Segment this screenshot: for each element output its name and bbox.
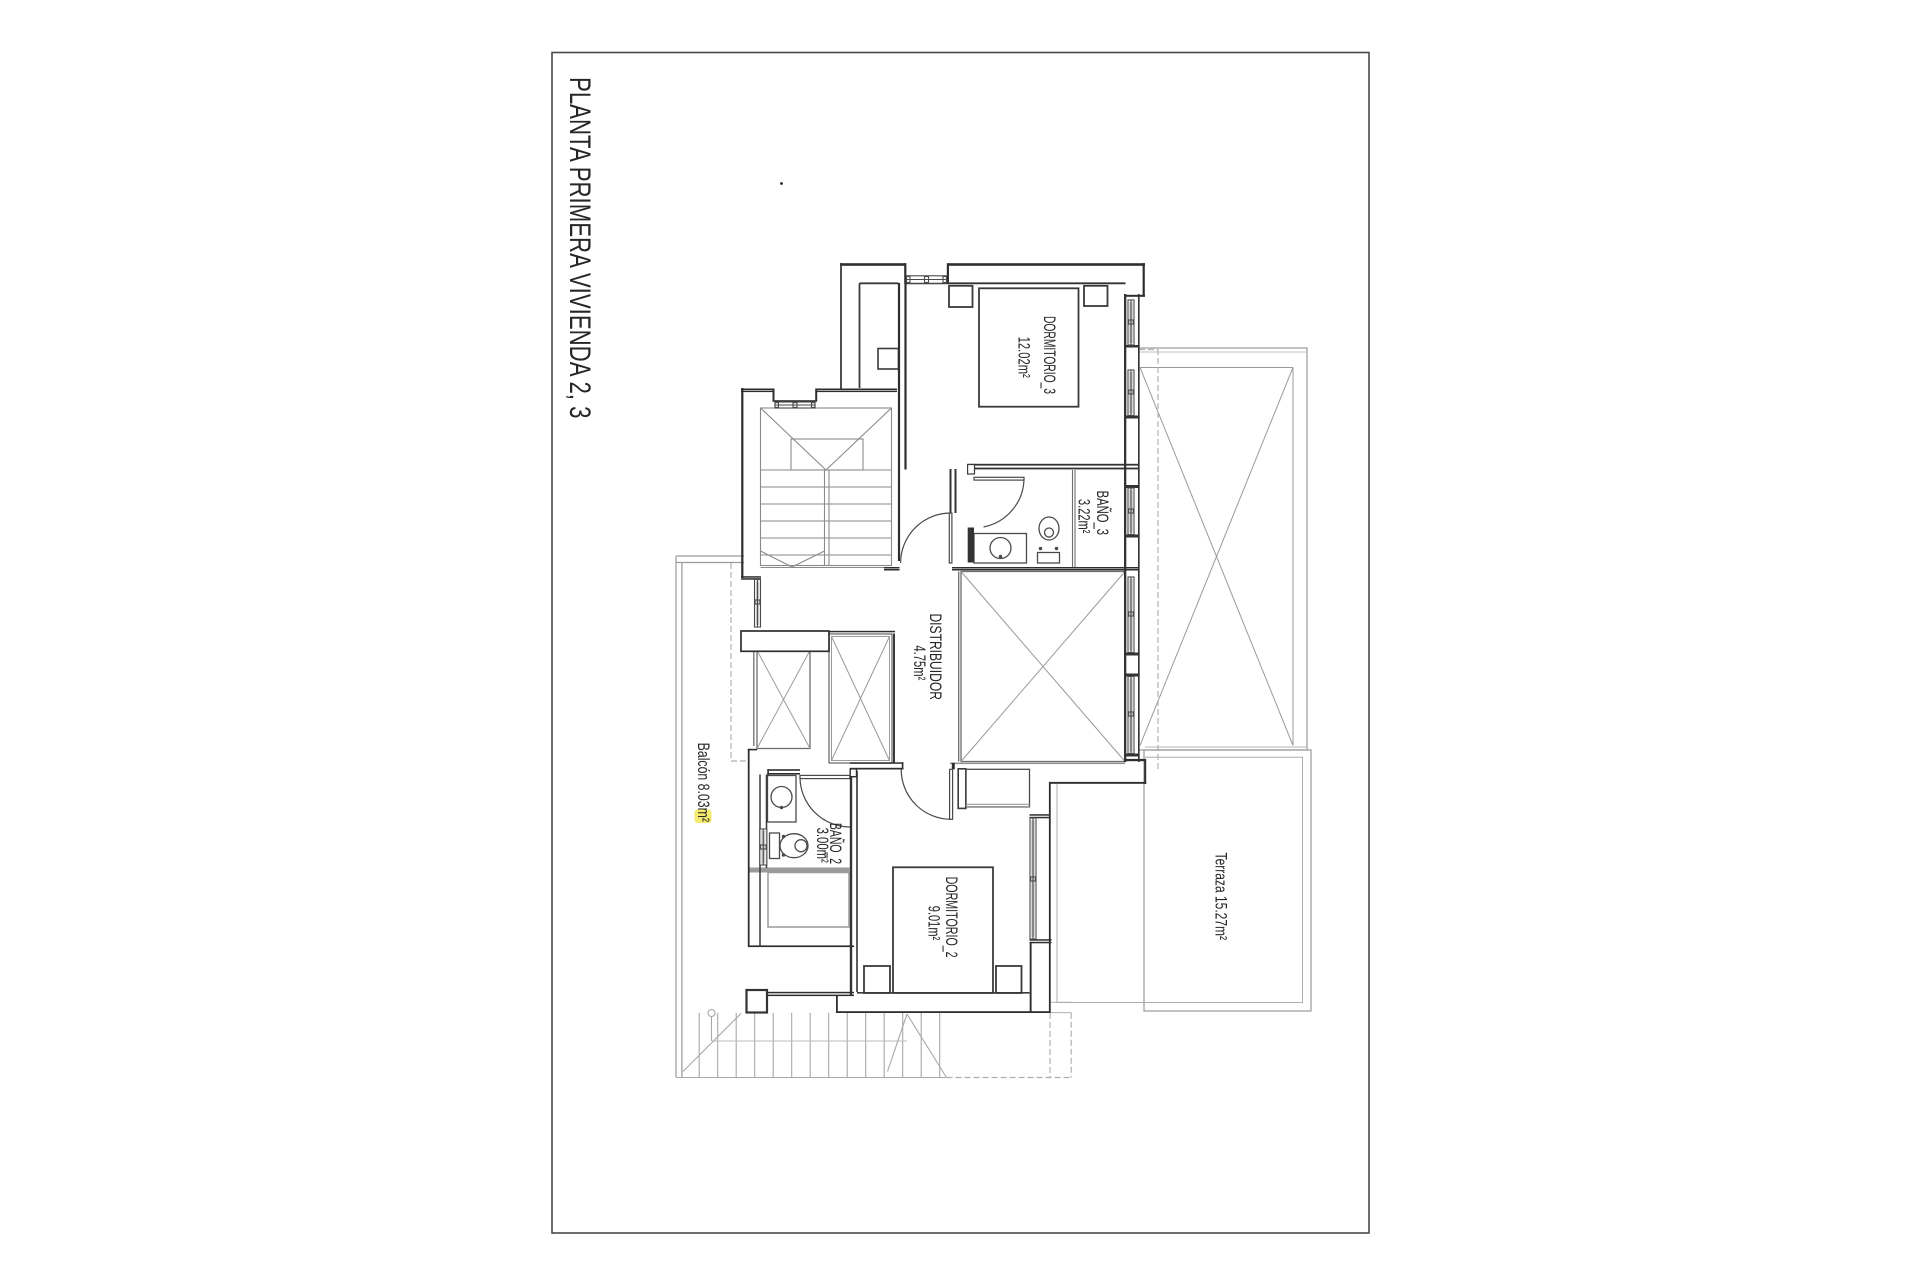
svg-text:Terraza 15.27m²: Terraza 15.27m² — [1211, 853, 1229, 941]
svg-text:Balcón 8.03m²: Balcón 8.03m² — [694, 743, 712, 822]
svg-text:DORMITORIO_2: DORMITORIO_2 — [941, 877, 960, 958]
svg-text:12.02m²: 12.02m² — [1014, 337, 1033, 378]
svg-text:DORMITORIO_3: DORMITORIO_3 — [1040, 316, 1059, 394]
svg-text:9.01m²: 9.01m² — [924, 906, 943, 941]
svg-text:4.75m²: 4.75m² — [909, 645, 928, 680]
svg-text:BAÑO_3: BAÑO_3 — [1092, 491, 1112, 535]
svg-text:3.22m²: 3.22m² — [1074, 499, 1093, 534]
svg-text:PLANTA PRIMERA VIVIENDA 2, 3: PLANTA PRIMERA VIVIENDA 2, 3 — [563, 77, 597, 419]
svg-text:3.00m²: 3.00m² — [812, 828, 831, 863]
